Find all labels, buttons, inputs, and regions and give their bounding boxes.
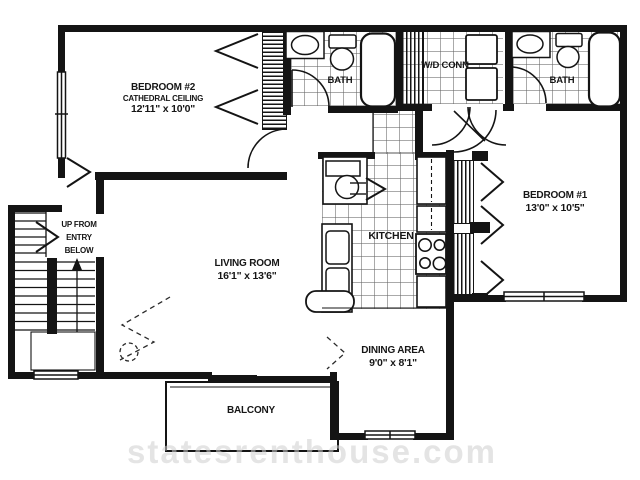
bedroom2-note: CATHEDRAL CEILING bbox=[88, 94, 238, 103]
bedroom1-south-wall-right bbox=[582, 295, 627, 302]
kitchen-floor-tile-ext bbox=[373, 110, 415, 154]
stair-north-wall bbox=[8, 205, 62, 212]
watermark-text: statesrenthouse.com bbox=[62, 433, 562, 471]
bedroom2-name: BEDROOM #2 bbox=[88, 82, 238, 94]
bedroom1-south-window bbox=[504, 292, 584, 301]
bedroom1-closet-hatch-south bbox=[452, 233, 474, 295]
floor-plan: BEDROOM #2 CATHEDRAL CEILING 12'11" x 10… bbox=[0, 0, 640, 480]
bath1-south-wall bbox=[328, 106, 398, 113]
stairs-line3: BELOW bbox=[53, 245, 105, 258]
kitchen-label: KITCHEN bbox=[358, 230, 424, 242]
living-room-dims: 16'1" x 13'6" bbox=[182, 270, 312, 282]
living-room-name: LIVING ROOM bbox=[182, 258, 312, 270]
bedroom1-closet-jamb-2 bbox=[470, 222, 490, 233]
bath2-south-wall bbox=[546, 104, 624, 111]
wd-south-wall-left bbox=[396, 104, 432, 111]
wd-conn-label: W/D CONN bbox=[413, 60, 477, 71]
bedroom1-dims: 13'0" x 10'5" bbox=[495, 202, 615, 214]
stair-lower-landing bbox=[31, 332, 95, 370]
bedroom1-closet-hatch-north bbox=[452, 160, 474, 224]
bedroom1-name: BEDROOM #1 bbox=[495, 190, 615, 202]
bedroom1-closet-jamb-3 bbox=[472, 293, 488, 302]
wall-east bbox=[620, 25, 627, 302]
kitchen-north-wall-left bbox=[318, 152, 375, 159]
stair-east-wall bbox=[96, 257, 104, 379]
bedroom1-label: BEDROOM #1 13'0" x 10'5" bbox=[495, 190, 615, 214]
bedroom2-closet-bifold-icon bbox=[216, 34, 258, 68]
kitchen-name: KITCHEN bbox=[368, 230, 413, 242]
bedroom2-door-arc bbox=[248, 129, 287, 168]
bedroom2-south-wall bbox=[95, 172, 287, 180]
stair-west-wall bbox=[8, 205, 15, 379]
living-dashed-circle bbox=[120, 343, 138, 361]
stairs-line1: UP FROM bbox=[53, 219, 105, 232]
bedroom2-entry-chevron-icon bbox=[67, 158, 90, 187]
bath1-floor-tile bbox=[291, 32, 396, 106]
stair-main-steps bbox=[15, 262, 95, 330]
stair-upper-steps bbox=[15, 209, 46, 257]
dining-area-dims: 9'0" x 8'1" bbox=[330, 357, 456, 369]
bath2-label: BATH bbox=[536, 75, 588, 86]
bath1-label: BATH bbox=[314, 75, 366, 86]
bath2-floor-tile bbox=[513, 32, 620, 104]
wd-west-wall bbox=[396, 25, 401, 111]
balcony-name: BALCONY bbox=[227, 405, 275, 416]
balcony-label: BALCONY bbox=[211, 405, 291, 417]
bedroom1-closet-jamb-1 bbox=[472, 151, 488, 161]
stairs-line2: ENTRY bbox=[53, 232, 105, 245]
bedroom2-dims: 12'11" x 10'0" bbox=[88, 103, 238, 115]
stair-up-arrow-icon bbox=[72, 258, 82, 332]
stairs-south-window bbox=[34, 371, 78, 379]
bedroom2-west-wall-lower bbox=[58, 156, 65, 178]
bedroom2-west-wall-upper bbox=[58, 25, 65, 73]
stair-east-pier bbox=[96, 180, 104, 214]
bath2-west-wall bbox=[505, 25, 513, 111]
wd-door-arc-right bbox=[468, 107, 506, 145]
dining-area-name: DINING AREA bbox=[330, 345, 456, 357]
bedroom2-label: BEDROOM #2 CATHEDRAL CEILING 12'11" x 10… bbox=[88, 82, 238, 116]
wall-north bbox=[58, 25, 627, 32]
wd-door-arc-left bbox=[432, 107, 470, 145]
dining-area-label: DINING AREA 9'0" x 8'1" bbox=[330, 345, 456, 369]
stair-stringer bbox=[47, 258, 57, 334]
living-room-label: LIVING ROOM 16'1" x 13'6" bbox=[182, 258, 312, 282]
bath1-west-wall bbox=[283, 25, 291, 115]
stairs-label: UP FROM ENTRY BELOW bbox=[53, 219, 105, 257]
living-south-wall-d bbox=[253, 376, 337, 383]
living-dashed-line bbox=[120, 297, 170, 360]
living-south-wall-c bbox=[208, 375, 257, 382]
bedroom1-door-arc bbox=[454, 110, 496, 152]
bedroom2-west-window bbox=[55, 72, 68, 158]
